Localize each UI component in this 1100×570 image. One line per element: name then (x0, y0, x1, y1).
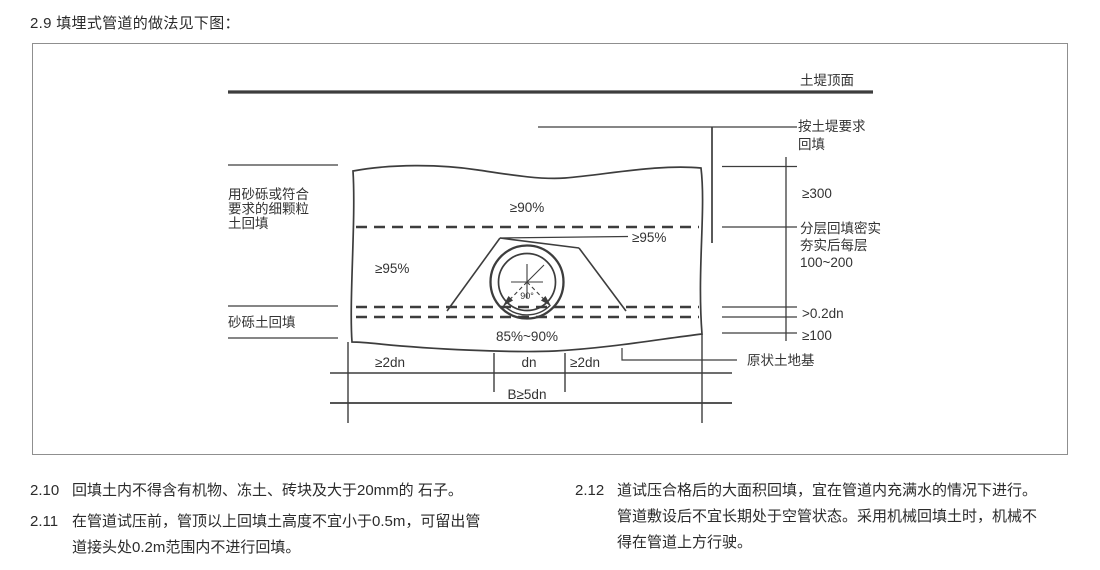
note-line: 道接头处0.2m范围内不进行回填。 (72, 535, 560, 561)
label-backfill-req-2: 回填 (798, 137, 825, 152)
note-line: 在管道试压前，管顶以上回填土高度不宜小于0.5m，可留出管 (72, 509, 560, 535)
label-undisturbed-soil: 原状土地基 (747, 352, 815, 368)
label-layered-1: 分层回填密实 (800, 220, 881, 236)
label-backfill-req-1: 按土堤要求 (798, 119, 866, 134)
label-dim-dn: dn (521, 355, 536, 370)
label-dim-100: ≥100 (802, 328, 832, 343)
note-number: 2.10 (30, 478, 72, 504)
notes-right-column: 2.12 道试压合格后的大面积回填，宜在管道内充满水的情况下进行。 管道敷设后不… (575, 478, 1085, 561)
note-number: 2.11 (30, 509, 72, 561)
note-text: 回填土内不得含有机物、冻土、砖块及大于20mm的 石子。 (72, 478, 560, 504)
note-item-2-11: 2.11 在管道试压前，管顶以上回填土高度不宜小于0.5m，可留出管 道接头处0… (30, 509, 560, 561)
note-line: 管道敷设后不宜长期处于空管状态。采用机械回填土时，机械不 (617, 504, 1085, 530)
label-layered-3: 100~200 (800, 255, 853, 270)
label-fine-soil-2: 要求的细颗粒 (228, 202, 309, 217)
note-line: 得在管道上方行驶。 (617, 530, 1085, 556)
document-page: 2.9 填埋式管道的做法见下图： (0, 0, 1100, 570)
label-fine-soil-3: 土回填 (228, 216, 269, 231)
note-line: 回填土内不得含有机物、冻土、砖块及大于20mm的 石子。 (72, 478, 560, 504)
notes-left-column: 2.10 回填土内不得含有机物、冻土、砖块及大于20mm的 石子。 2.11 在… (30, 478, 560, 566)
note-text: 在管道试压前，管顶以上回填土高度不宜小于0.5m，可留出管 道接头处0.2m范围… (72, 509, 560, 561)
label-compaction-top: ≥90% (510, 200, 544, 215)
note-line: 道试压合格后的大面积回填，宜在管道内充满水的情况下进行。 (617, 478, 1085, 504)
label-dim-02dn: >0.2dn (802, 306, 844, 321)
label-pipe-angle: 90° (520, 291, 534, 301)
undisturbed-soil-leader (622, 348, 737, 360)
note-item-2-10: 2.10 回填土内不得含有机物、冻土、砖块及大于20mm的 石子。 (30, 478, 560, 504)
label-layered-2: 夯实后每层 (800, 238, 868, 253)
note-text: 道试压合格后的大面积回填，宜在管道内充满水的情况下进行。 管道敷设后不宜长期处于… (617, 478, 1085, 556)
label-compaction-haunch: ≥95% (632, 230, 666, 245)
label-gravel-backfill: 砂砾土回填 (228, 315, 296, 330)
note-number: 2.12 (575, 478, 617, 556)
label-compaction-bottom: 85%~90% (496, 329, 558, 344)
soil-block-outline (351, 166, 702, 352)
label-dim-total-width: B≥5dn (508, 387, 547, 402)
label-dim-right-2dn: ≥2dn (570, 355, 600, 370)
note-item-2-12: 2.12 道试压合格后的大面积回填，宜在管道内充满水的情况下进行。 管道敷设后不… (575, 478, 1085, 556)
label-fine-soil-1: 用砂砾或符合 (228, 187, 309, 202)
label-dim-300: ≥300 (802, 186, 832, 201)
label-compaction-left: ≥95% (375, 261, 409, 276)
label-dim-left-2dn: ≥2dn (375, 355, 405, 370)
label-embankment-top: 土堤顶面 (800, 73, 854, 88)
